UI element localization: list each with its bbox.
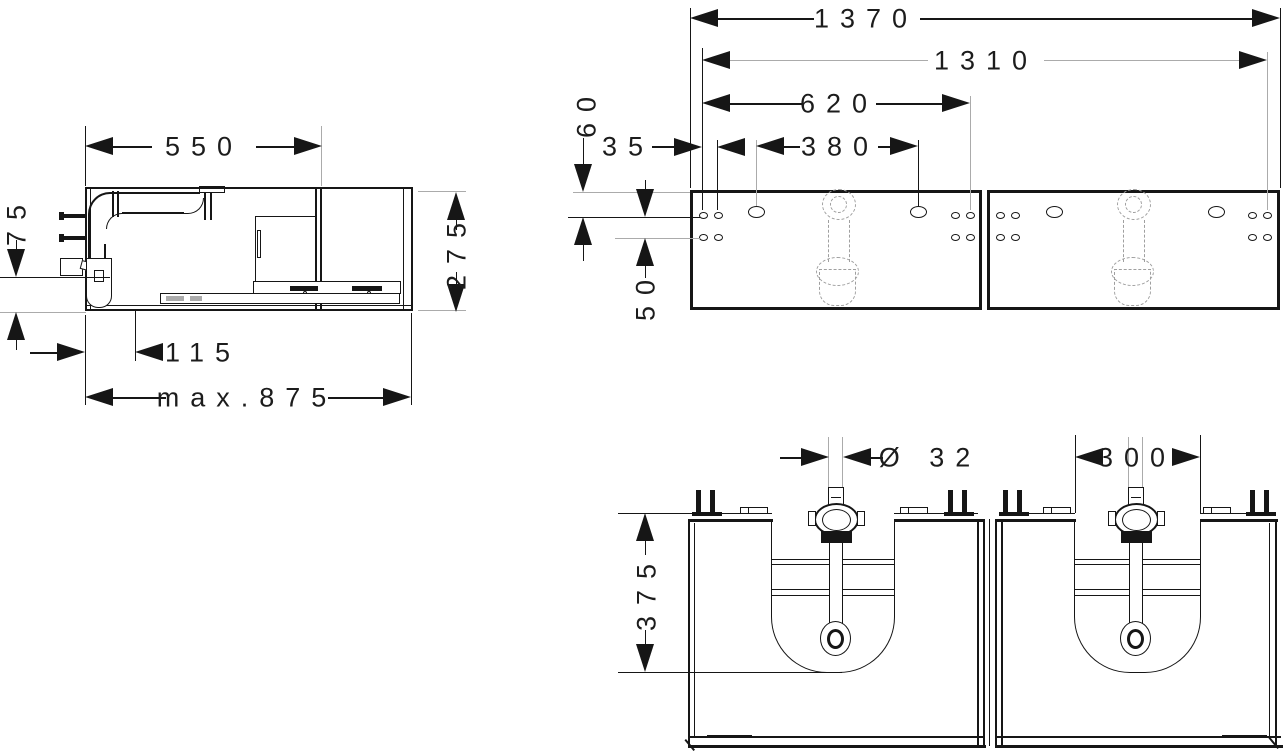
siphon-hidden-pipe [828, 220, 829, 262]
dim-300-label: 300 [1098, 443, 1176, 474]
gap-joint-line [977, 519, 979, 746]
fixing-tab [1203, 507, 1231, 514]
outlet-flange-line [204, 193, 206, 220]
extension-line [690, 8, 691, 188]
arrowhead-icon [574, 164, 592, 192]
arrowhead-icon [890, 137, 918, 155]
gap-joint-line [995, 519, 997, 746]
drawer-handle-slot [257, 230, 261, 258]
dimension-line [876, 103, 942, 105]
top-edge [995, 519, 1076, 522]
dim-max875-label: max.875 [157, 383, 338, 414]
dim-35-label: 35 [602, 132, 654, 163]
union-wing [808, 511, 816, 526]
dim-50-label: 50 [631, 269, 662, 321]
pipe-flange [117, 191, 119, 217]
side-wall-inner [694, 523, 695, 736]
union-wing [1108, 511, 1116, 526]
gap-joint-line [1001, 519, 1003, 746]
siphon-hidden-inlet [830, 196, 847, 213]
top-edge [690, 519, 773, 522]
rail-detail [166, 296, 184, 301]
drain-pipe [829, 543, 843, 625]
dimension-line [30, 352, 57, 354]
oval-hole [1046, 206, 1063, 218]
wall-stud-head [59, 212, 64, 220]
arrowhead-icon [756, 137, 784, 155]
side-wall-inner [1269, 523, 1270, 736]
union-wing [857, 511, 865, 526]
side-wall [688, 519, 690, 748]
drill-hole [1263, 234, 1272, 241]
rail-detail [190, 296, 202, 301]
union-wing [1157, 511, 1165, 526]
gap-joint-line [989, 519, 990, 746]
arrowhead-icon [636, 513, 654, 541]
mounting-stud-base [944, 512, 974, 516]
siphon-trap [86, 258, 112, 308]
seal-ring [1121, 531, 1152, 543]
dim-75-label: 75 [2, 194, 33, 246]
drain-pipe-top [120, 192, 200, 194]
dim-60-label: 60 [572, 86, 603, 138]
drain-pipe-bottom [122, 212, 184, 214]
arrowhead-icon [85, 388, 113, 406]
drill-hole [966, 212, 975, 219]
fixing-tab-line [1051, 507, 1052, 514]
dim-1310-label: 1310 [934, 46, 1038, 77]
arrowhead-icon [690, 9, 718, 27]
arrowhead-icon [1172, 448, 1200, 466]
dimension-line [652, 146, 674, 148]
dimension-line [920, 18, 1252, 20]
dim-diameter-label: Ø 32 [879, 443, 982, 474]
basin-outlet-cap [199, 186, 225, 193]
reference-line [615, 238, 700, 239]
extension-line [321, 126, 322, 186]
arrowhead-icon [636, 644, 654, 672]
drill-hole [1248, 234, 1257, 241]
arrowhead-icon [702, 94, 730, 112]
mounting-stud [948, 490, 953, 512]
outlet-flange-line [210, 193, 212, 220]
mounting-stud [1264, 490, 1269, 512]
mounting-stud [1017, 490, 1022, 512]
drill-hole [951, 234, 960, 241]
mounting-stud-base [692, 512, 722, 516]
drill-hole [1011, 234, 1020, 241]
siphon-hidden-pipe [849, 220, 850, 262]
fixing-tab [1043, 507, 1071, 514]
top-edge [1200, 519, 1278, 522]
drill-hole [996, 212, 1005, 219]
mounting-stud-base [1246, 512, 1276, 516]
dim-275-label: 275 [442, 212, 473, 290]
arrowhead-icon [85, 137, 113, 155]
dim-115-label: 115 [165, 338, 241, 369]
extension-line [411, 313, 412, 405]
arrowhead-icon [294, 137, 322, 155]
drill-hole [966, 234, 975, 241]
mounting-stud [696, 490, 701, 512]
arrowhead-icon [636, 238, 654, 266]
extension-line [1075, 435, 1076, 513]
siphon-hidden-pipe [1144, 220, 1145, 262]
drill-hole [699, 234, 708, 241]
wall-stud-head [59, 234, 64, 242]
coupling-line [831, 497, 841, 498]
side-wall [1275, 519, 1277, 748]
oval-hole [748, 206, 765, 218]
union-nut-inner [1122, 509, 1151, 531]
mounting-stud [1003, 490, 1008, 512]
arrowhead-icon [702, 51, 730, 69]
arrowhead-icon [574, 217, 592, 245]
trap-outlet-inner [1127, 629, 1144, 649]
rail-detail [352, 286, 382, 291]
dimension-line [645, 630, 646, 644]
dimension-line [583, 138, 584, 164]
dim-620-label: 620 [800, 89, 878, 120]
oval-hole [910, 206, 927, 218]
siphon-hidden-cup [819, 269, 856, 306]
union-nut-inner [822, 509, 851, 531]
drill-hole [1263, 212, 1272, 219]
dimension-line [718, 18, 814, 20]
plinth-shadow [707, 735, 752, 738]
mounting-stud [710, 490, 715, 512]
arrowhead-icon [843, 448, 871, 466]
bottom-inner-line [87, 305, 411, 306]
seal-ring [821, 531, 852, 543]
drill-hole [1248, 212, 1257, 219]
arrowhead-icon [7, 249, 25, 277]
dimension-line [1044, 60, 1239, 61]
dimension-line [16, 340, 17, 350]
fixing-tab [900, 507, 928, 514]
dimension-line [645, 180, 646, 189]
arrowhead-icon [135, 343, 163, 361]
arrowhead-icon [674, 138, 702, 156]
fixing-tab-line [908, 507, 909, 514]
arrowhead-icon [717, 138, 745, 156]
drill-hole [1011, 212, 1020, 219]
wall-stud [62, 236, 86, 240]
technical-drawing: 550 75 115 max.875 275 [0, 0, 1283, 751]
plinth-edge [688, 745, 986, 748]
drill-hole [714, 234, 723, 241]
dim-380-label: 380 [801, 132, 879, 163]
dimension-line [730, 60, 928, 61]
fixing-tab [740, 507, 768, 514]
dimension-line [730, 103, 802, 105]
fixing-tab-line [748, 507, 749, 514]
wall-stud [62, 214, 86, 218]
arrowhead-icon [636, 189, 654, 217]
arrowhead-icon [1252, 9, 1280, 27]
drill-hole [714, 212, 723, 219]
right-wall-inner-line [403, 189, 404, 309]
siphon-trap-detail [94, 270, 104, 282]
extension-line [1280, 8, 1281, 188]
mounting-stud [962, 490, 967, 512]
gap-joint-line [983, 519, 985, 746]
dim-1370-label: 1370 [814, 4, 918, 35]
extension-line [702, 48, 703, 210]
dimension-line [780, 457, 801, 459]
coupling-line [1131, 497, 1141, 498]
arrowhead-icon [801, 448, 829, 466]
siphon-hidden-inlet [1125, 196, 1142, 213]
dimension-line [878, 146, 890, 148]
drain-tailpiece-upper [828, 437, 843, 488]
reference-line [573, 192, 690, 193]
dim-550-label: 550 [165, 132, 243, 163]
dimension-line [784, 146, 800, 148]
siphon-hidden-pipe [1123, 220, 1124, 262]
arrowhead-icon [942, 94, 970, 112]
extension-line [970, 96, 971, 210]
trap-outlet-inner [827, 629, 844, 649]
extension-line [85, 126, 86, 186]
dimension-line [583, 245, 584, 261]
drill-hole [996, 234, 1005, 241]
siphon-hidden-cup [1114, 269, 1151, 306]
pipe-flange [112, 191, 114, 217]
mounting-stud-base [999, 512, 1029, 516]
extension-line [1267, 52, 1268, 210]
mounting-stud [1250, 490, 1255, 512]
arrowhead-icon [383, 388, 411, 406]
reference-line [618, 513, 692, 514]
drill-hole [699, 212, 708, 219]
extension-line [918, 140, 919, 206]
reference-line [0, 277, 110, 278]
drain-pipe [1129, 543, 1143, 625]
fixing-tab-line [1211, 507, 1212, 514]
reference-line [618, 672, 842, 673]
arrowhead-icon [57, 343, 85, 361]
drill-hole [951, 212, 960, 219]
extension-line [1200, 435, 1201, 513]
dim-375-label: 375 [632, 553, 663, 631]
plinth-shadow [1222, 735, 1267, 738]
arrowhead-icon [7, 312, 25, 340]
plinth-edge [995, 745, 1283, 748]
arrowhead-icon [1239, 51, 1267, 69]
top-edge [894, 519, 984, 522]
oval-hole [1208, 206, 1225, 218]
